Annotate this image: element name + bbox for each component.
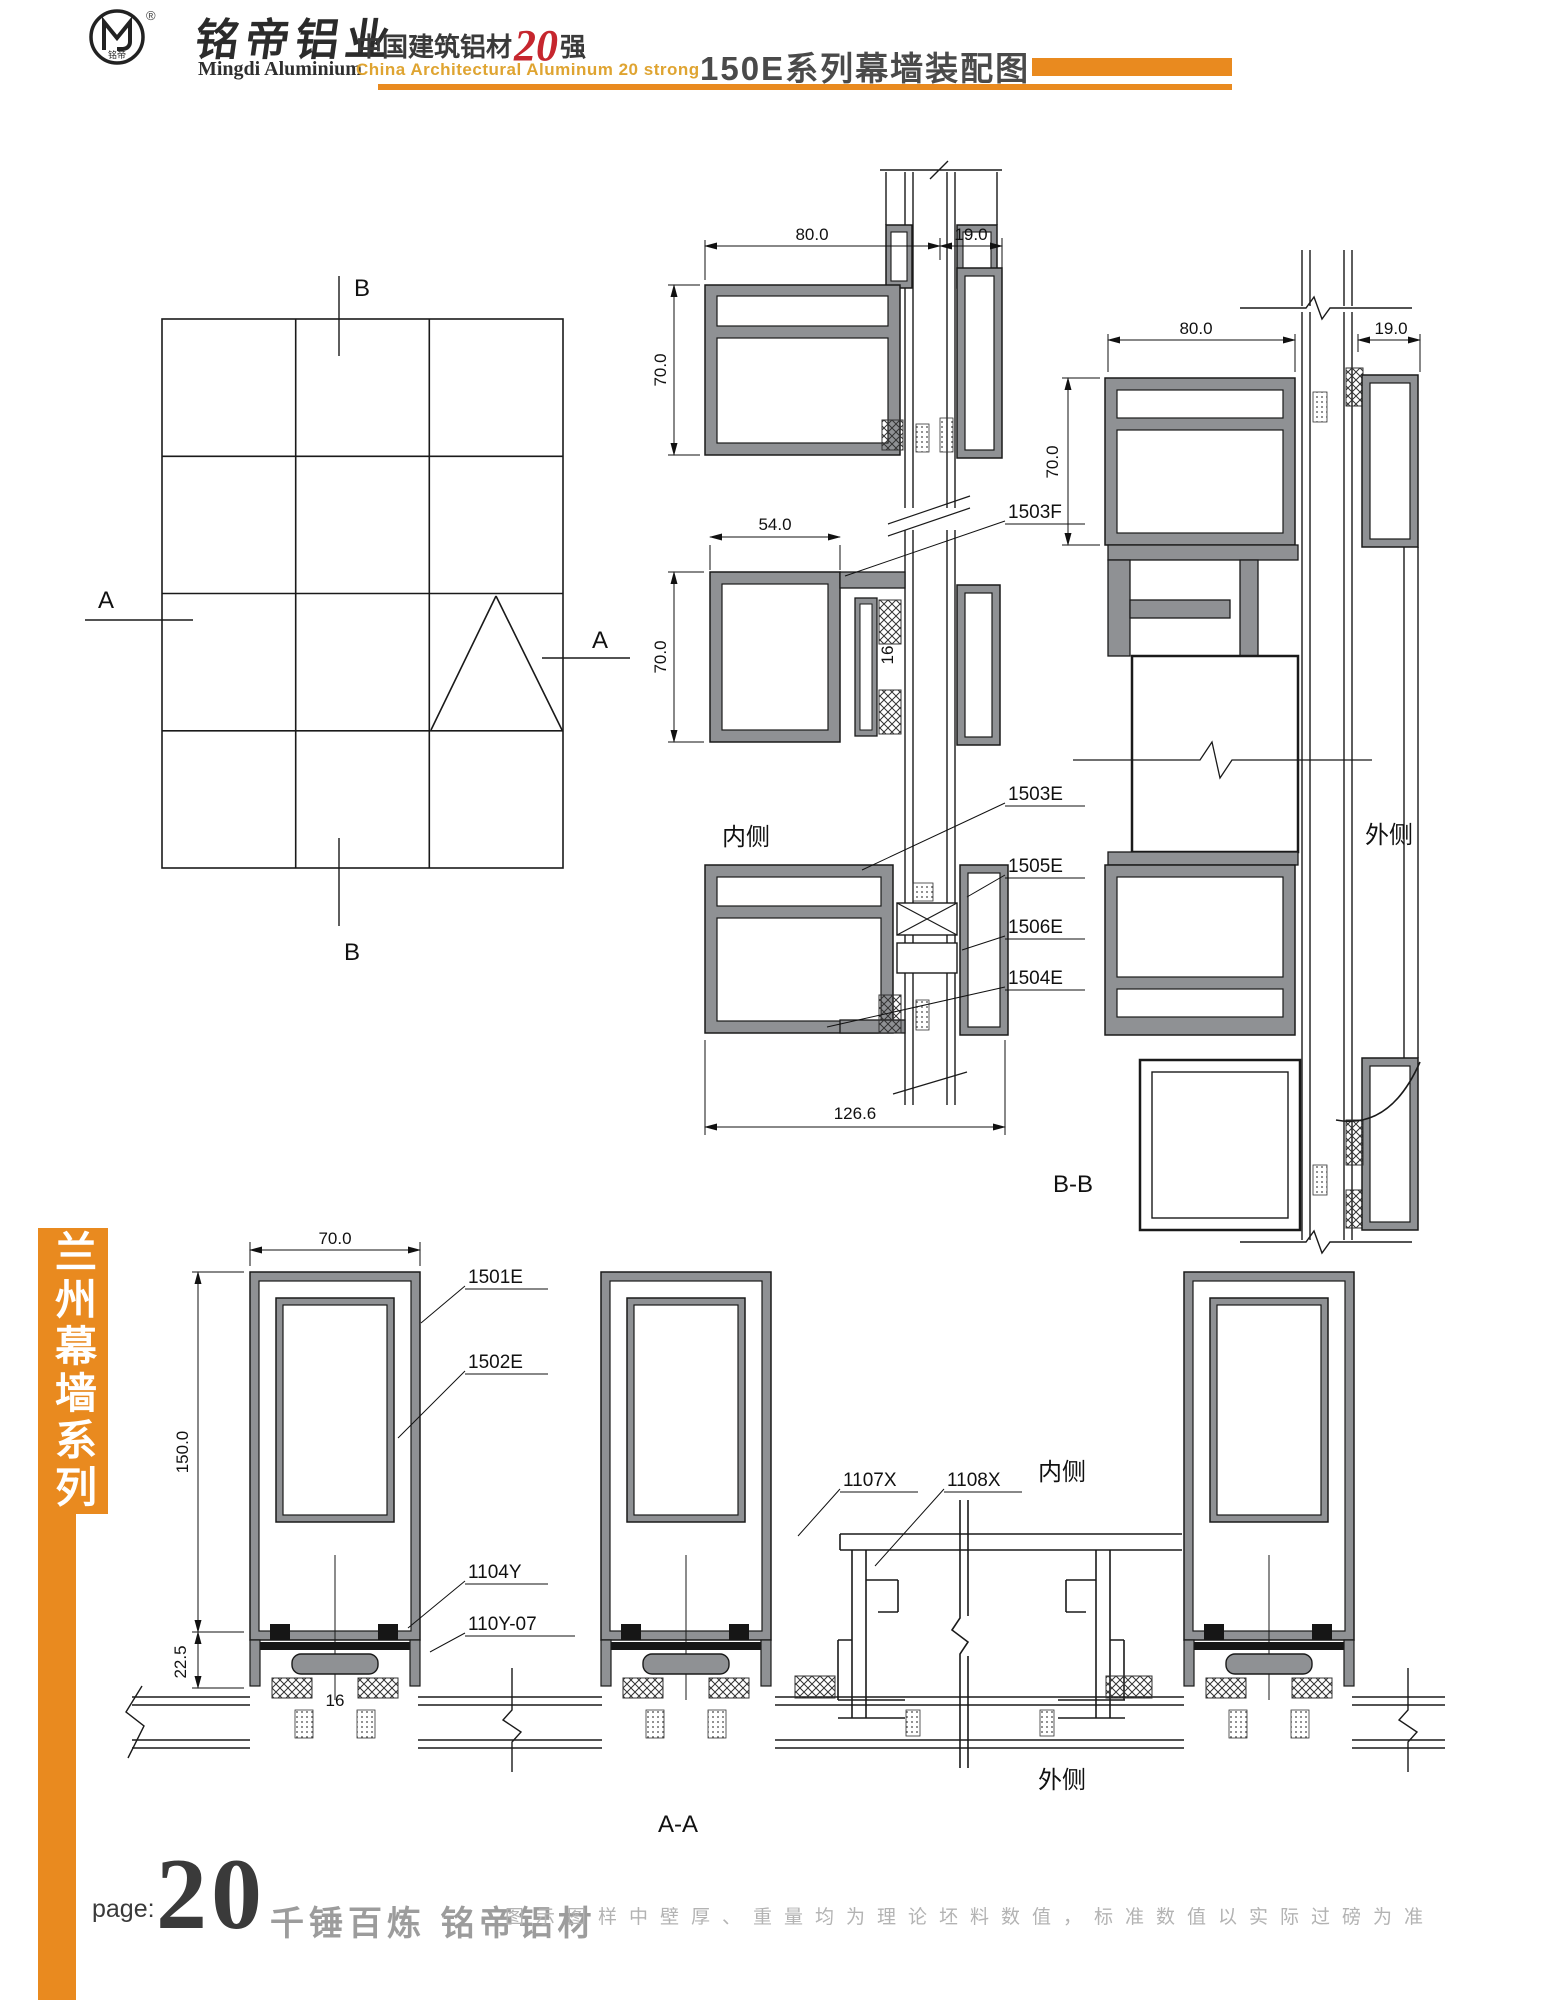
assembly-drawing: B B A A: [0, 0, 1565, 2000]
dim-54: 54.0: [758, 515, 791, 534]
section-marker-a-right: A: [592, 627, 608, 654]
dim-70: 70.0: [651, 353, 670, 386]
dim-19: 19.0: [1374, 319, 1407, 338]
dim-80: 80.0: [795, 225, 828, 244]
dim-16: 16: [878, 646, 897, 665]
part-label-110y07: 110Y-07: [468, 1614, 537, 1635]
top-transom-profile: [1105, 368, 1418, 547]
top-transom-profile: [705, 268, 1002, 458]
break-symbol: [952, 1500, 968, 1768]
mullion-body: [1108, 545, 1298, 865]
section-marker-a-left: A: [98, 587, 114, 614]
section-marker-b-bottom: B: [344, 939, 360, 966]
break-symbol: [503, 1668, 521, 1772]
section-title-aa: A-A: [658, 1811, 698, 1838]
dim-22: 22.5: [171, 1645, 190, 1678]
dim-16: 16: [326, 1691, 345, 1710]
mullion-section-3: [1184, 1272, 1354, 1738]
bb-section-interior: 80.0 19.0 70.0 54.0 70.: [651, 161, 1085, 1135]
dim-80: 80.0: [1179, 319, 1212, 338]
mullion-section-2: [601, 1272, 771, 1738]
outer-side-label: 外侧: [1365, 822, 1413, 849]
part-label-1503f: 1503F: [1008, 502, 1062, 523]
part-label-1502e: 1502E: [468, 1352, 523, 1373]
mullion-section-1: [250, 1272, 420, 1738]
section-title-bb: B-B: [1053, 1171, 1093, 1198]
section-marker-b-top: B: [354, 275, 370, 302]
elevation-plan: [85, 276, 630, 926]
dim-126: 126.6: [834, 1104, 877, 1123]
dim-70: 70.0: [651, 640, 670, 673]
dim-70: 70.0: [1043, 445, 1062, 478]
part-label-1505e: 1505E: [1008, 856, 1063, 877]
dim-150: 150.0: [173, 1431, 192, 1474]
window-frame-section: [838, 1500, 1182, 1768]
part-label-1107x: 1107X: [843, 1470, 897, 1491]
bb-section-exterior: 80.0 19.0 70.0: [1043, 250, 1420, 1253]
aa-section: 70.0 150.0 22.5 16 1501E 1502E 1104Y 110…: [126, 1229, 1445, 1838]
outer-side-label: 外侧: [1038, 1767, 1086, 1794]
inner-side-label: 内侧: [1038, 1459, 1086, 1486]
inner-side-label: 内侧: [722, 824, 770, 851]
section-cut-lines: [85, 276, 630, 926]
window-opening-symbol: [431, 596, 562, 730]
exterior-cover-strip: [1404, 547, 1418, 1058]
part-label-1104y: 1104Y: [468, 1562, 522, 1583]
part-label-1506e: 1506E: [1008, 917, 1063, 938]
part-label-1108x: 1108X: [947, 1470, 1001, 1491]
break-symbol: [893, 1072, 967, 1094]
break-symbol: [888, 496, 970, 536]
part-label-1503e: 1503E: [1008, 784, 1063, 805]
break-symbol: [1399, 1668, 1417, 1772]
part-label-1504e: 1504E: [1008, 968, 1063, 989]
catalog-page: 铭帝 ® 铭帝铝业 Mingdi Aluminium 中国建筑铝材20强 Chi…: [0, 0, 1565, 2000]
profile-1503f: [710, 572, 1000, 745]
dim-70: 70.0: [318, 1229, 351, 1248]
part-label-1501e: 1501E: [468, 1267, 523, 1288]
dim-19: 19.0: [954, 225, 987, 244]
